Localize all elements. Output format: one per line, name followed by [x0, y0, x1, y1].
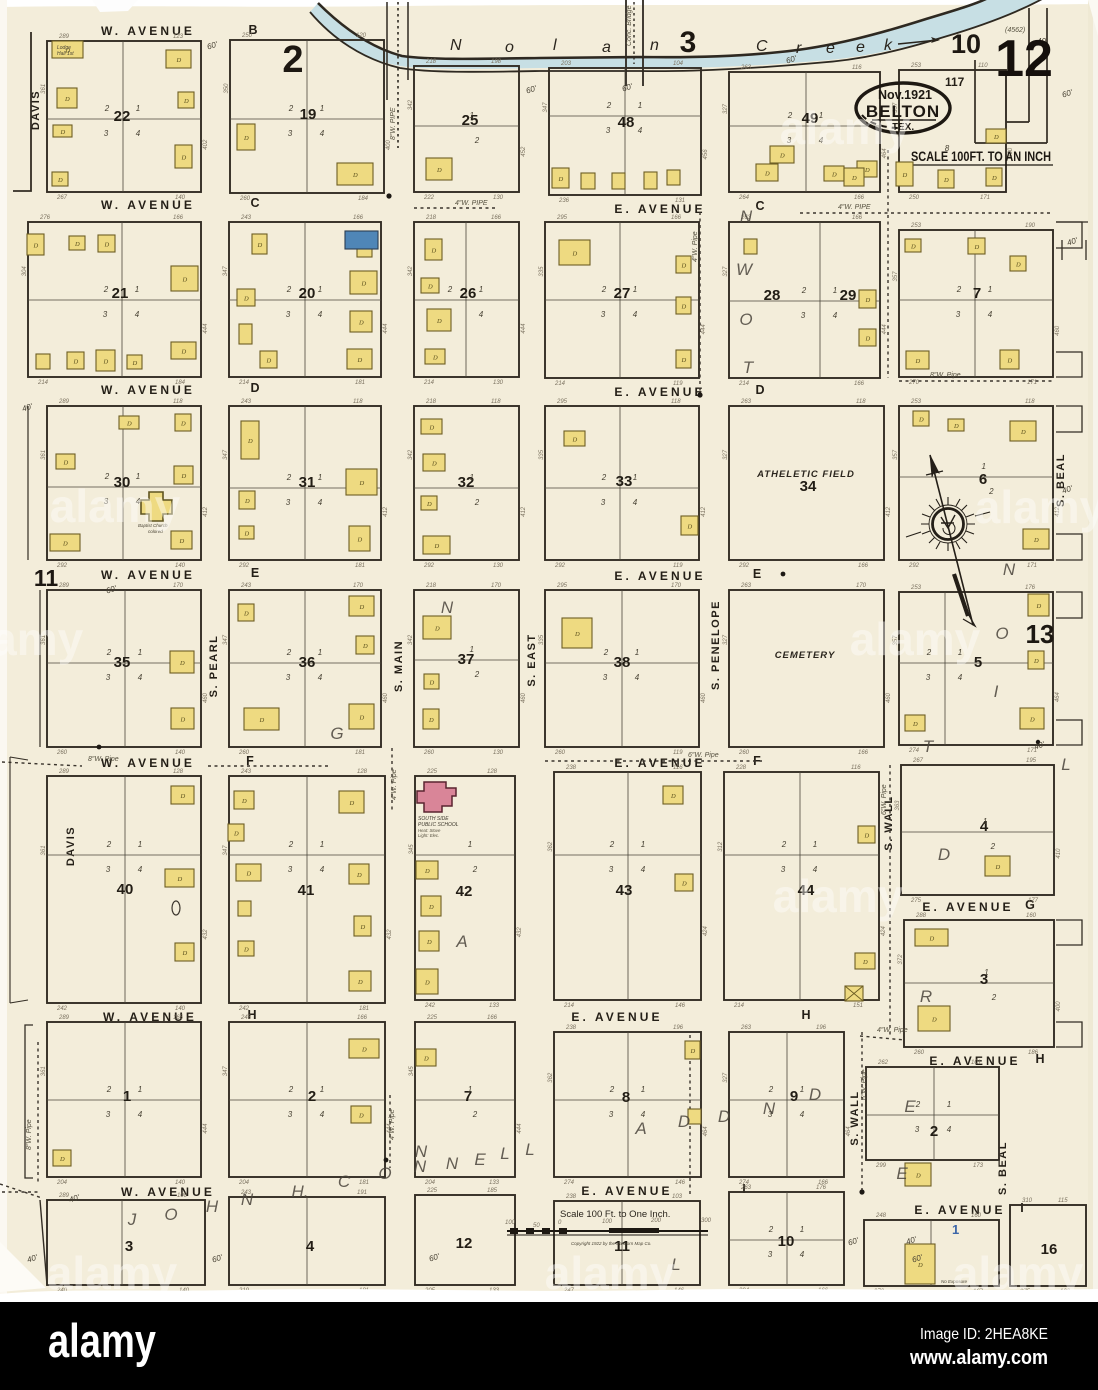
svg-text:190: 190: [1025, 223, 1036, 229]
svg-text:D: D: [243, 611, 249, 618]
svg-text:D: D: [57, 177, 63, 184]
svg-text:444: 444: [203, 1123, 209, 1134]
svg-text:1: 1: [635, 648, 639, 657]
svg-text:176: 176: [1025, 585, 1036, 591]
svg-text:D: D: [993, 134, 999, 141]
svg-text:260: 260: [238, 750, 250, 756]
svg-text:361: 361: [41, 450, 47, 460]
svg-text:D: D: [1015, 262, 1021, 269]
svg-text:464: 464: [703, 1126, 709, 1137]
svg-text:372: 372: [898, 954, 904, 965]
svg-text:D: D: [424, 868, 430, 875]
svg-text:N: N: [446, 1154, 459, 1173]
svg-text:4: 4: [320, 129, 325, 138]
svg-text:166: 166: [357, 1015, 368, 1021]
svg-text:D: D: [431, 248, 437, 255]
svg-text:D: D: [426, 939, 432, 946]
svg-text:292: 292: [238, 563, 250, 569]
svg-text:L: L: [1061, 755, 1070, 774]
svg-text:130: 130: [493, 195, 504, 201]
svg-text:195: 195: [1026, 758, 1037, 764]
svg-text:242: 242: [238, 1006, 250, 1012]
svg-text:41: 41: [298, 882, 315, 899]
svg-text:G: G: [330, 724, 343, 743]
svg-text:4″W. Pipe: 4″W. Pipe: [877, 1027, 908, 1034]
svg-text:171: 171: [980, 195, 990, 201]
svg-text:444: 444: [517, 1123, 523, 1134]
svg-text:19: 19: [300, 106, 317, 123]
svg-text:4″W. Pipe: 4″W. Pipe: [391, 769, 398, 800]
svg-text:22: 22: [114, 108, 131, 125]
svg-text:D: D: [943, 177, 949, 184]
svg-text:170: 170: [856, 583, 867, 589]
svg-text:327: 327: [723, 103, 729, 114]
svg-text:1: 1: [320, 104, 324, 113]
svg-text:3: 3: [609, 1110, 614, 1119]
svg-text:e: e: [826, 40, 835, 57]
svg-text:262: 262: [877, 1060, 889, 1066]
svg-text:D: D: [991, 175, 997, 182]
svg-text:166: 166: [353, 215, 364, 221]
svg-text:1: 1: [138, 1085, 142, 1094]
svg-text:SCALE 100FT. TO AN INCH: SCALE 100FT. TO AN INCH: [911, 149, 1051, 164]
svg-text:J: J: [127, 1210, 137, 1229]
svg-text:133: 133: [489, 1180, 500, 1186]
svg-text:177: 177: [1028, 898, 1039, 904]
svg-text:181: 181: [355, 380, 365, 386]
svg-text:412: 412: [521, 506, 527, 517]
svg-text:35: 35: [114, 654, 131, 671]
svg-text:274: 274: [908, 748, 920, 754]
svg-text:263: 263: [740, 65, 752, 71]
svg-text:263: 263: [740, 1185, 752, 1191]
svg-text:300: 300: [701, 1218, 712, 1224]
svg-text:D: D: [574, 631, 580, 638]
svg-text:204: 204: [56, 1180, 68, 1186]
svg-text:D: D: [361, 1047, 367, 1054]
svg-text:214: 214: [238, 380, 250, 386]
svg-text:D: D: [180, 421, 186, 428]
svg-text:D: D: [243, 947, 249, 954]
svg-text:146: 146: [675, 1003, 686, 1009]
svg-text:1: 1: [318, 285, 322, 294]
svg-text:2: 2: [956, 285, 962, 294]
svg-text:N: N: [415, 1142, 428, 1161]
svg-text:D: D: [434, 626, 440, 633]
svg-text:D: D: [259, 717, 265, 724]
svg-text:253: 253: [910, 399, 922, 405]
svg-text:2: 2: [286, 285, 292, 294]
svg-text:260: 260: [913, 1050, 925, 1056]
svg-text:299: 299: [875, 1163, 887, 1169]
svg-text:146: 146: [675, 1180, 686, 1186]
svg-text:D: D: [126, 421, 132, 428]
svg-text:184: 184: [175, 380, 186, 386]
svg-text:267: 267: [56, 195, 68, 201]
svg-text:1: 1: [947, 1100, 951, 1109]
svg-text:D: D: [831, 172, 837, 179]
svg-text:118: 118: [353, 399, 363, 405]
svg-text:347: 347: [223, 449, 229, 460]
svg-text:D: D: [427, 284, 433, 291]
svg-text:D: D: [246, 871, 252, 878]
svg-text:460: 460: [1055, 325, 1061, 336]
svg-text:250: 250: [241, 33, 253, 39]
svg-text:T: T: [743, 358, 755, 377]
svg-text:D: D: [1020, 429, 1026, 436]
svg-text:D: D: [865, 336, 871, 343]
svg-text:2: 2: [606, 101, 612, 110]
svg-text:Nov.1921: Nov.1921: [878, 88, 932, 102]
svg-text:260: 260: [554, 750, 566, 756]
svg-text:E: E: [753, 567, 761, 581]
svg-text:W: W: [736, 260, 754, 279]
svg-text:274: 274: [563, 1180, 575, 1186]
svg-text:D: D: [357, 357, 363, 364]
svg-text:196: 196: [673, 1025, 684, 1031]
svg-text:243: 243: [240, 769, 252, 775]
svg-text:432: 432: [387, 929, 393, 940]
svg-text:160: 160: [1026, 913, 1037, 919]
svg-text:D: D: [359, 604, 365, 611]
svg-text:166: 166: [854, 195, 865, 201]
svg-text:4: 4: [306, 1238, 315, 1255]
svg-text:D: D: [428, 717, 434, 724]
svg-text:118: 118: [856, 399, 866, 405]
svg-text:2: 2: [106, 1085, 112, 1094]
svg-text:263: 263: [740, 399, 752, 405]
svg-text:327: 327: [723, 634, 729, 645]
svg-text:186: 186: [1028, 1050, 1039, 1056]
svg-text:D: D: [74, 241, 80, 248]
svg-text:D: D: [953, 423, 959, 430]
svg-text:21: 21: [112, 285, 129, 302]
svg-text:130: 130: [493, 750, 504, 756]
svg-text:130: 130: [493, 380, 504, 386]
svg-text:263: 263: [740, 1025, 752, 1031]
svg-text:119: 119: [673, 381, 683, 387]
svg-text:C: C: [338, 1172, 351, 1191]
svg-text:alamy: alamy: [975, 481, 1098, 533]
svg-text:D: D: [60, 129, 66, 136]
svg-text:464: 464: [846, 1126, 852, 1137]
svg-text:D: D: [995, 864, 1001, 871]
svg-text:432: 432: [203, 929, 209, 940]
svg-text:D: D: [1033, 537, 1039, 544]
svg-text:218: 218: [425, 59, 437, 65]
svg-text:E. AVENUE: E. AVENUE: [914, 1203, 1005, 1217]
svg-text:C: C: [756, 38, 768, 55]
svg-text:D: D: [177, 876, 183, 883]
svg-text:D: D: [864, 833, 870, 840]
svg-text:166: 166: [671, 215, 682, 221]
svg-text:238: 238: [565, 1194, 577, 1200]
svg-text:196: 196: [816, 1025, 827, 1031]
svg-text:O: O: [378, 1164, 391, 1183]
svg-text:128: 128: [487, 769, 498, 775]
svg-text:400: 400: [1056, 1001, 1062, 1012]
svg-text:4: 4: [800, 1250, 805, 1259]
svg-text:D: D: [1036, 603, 1042, 610]
svg-text:D: D: [809, 1085, 821, 1104]
svg-text:263: 263: [740, 583, 752, 589]
svg-text:166: 166: [858, 750, 869, 756]
svg-text:50: 50: [533, 1223, 540, 1229]
svg-text:D: D: [104, 242, 110, 249]
svg-text:alamy: alamy: [773, 870, 904, 922]
svg-text:289: 289: [58, 1015, 70, 1021]
svg-text:a: a: [602, 39, 611, 56]
svg-text:n: n: [650, 37, 659, 54]
svg-text:2: 2: [472, 1110, 478, 1119]
svg-text:292: 292: [738, 563, 750, 569]
svg-text:D: D: [33, 243, 39, 250]
svg-text:166: 166: [854, 381, 865, 387]
svg-text:432: 432: [517, 927, 523, 938]
svg-text:289: 289: [58, 399, 70, 405]
svg-text:3: 3: [601, 498, 606, 507]
svg-text:D: D: [360, 924, 366, 931]
svg-text:E. AVENUE: E. AVENUE: [571, 1010, 662, 1024]
svg-text:Copyright 1922 by the Sanborn: Copyright 1922 by the Sanborn Map Co.: [571, 1241, 652, 1246]
svg-text:D: D: [180, 717, 186, 724]
svg-text:D: D: [915, 1173, 921, 1180]
svg-text:2: 2: [601, 285, 607, 294]
svg-text:214: 214: [423, 380, 435, 386]
svg-text:4: 4: [135, 310, 140, 319]
svg-text:3: 3: [288, 1110, 293, 1119]
svg-text:29: 29: [840, 287, 857, 304]
svg-text:1: 1: [813, 840, 817, 849]
svg-text:101: 101: [971, 1060, 981, 1066]
svg-text:D: D: [681, 263, 687, 270]
svg-text:D: D: [428, 904, 434, 911]
svg-text:342: 342: [408, 634, 414, 645]
svg-text:6″W. Pipe: 6″W. Pipe: [881, 784, 888, 815]
svg-text:110: 110: [978, 63, 988, 69]
svg-text:3: 3: [915, 1125, 920, 1134]
svg-text:4: 4: [641, 1110, 646, 1119]
svg-text:D: D: [429, 680, 435, 687]
svg-text:335: 335: [539, 449, 545, 460]
svg-text:345: 345: [409, 844, 415, 855]
svg-text:D: D: [690, 1048, 696, 1055]
svg-text:140: 140: [175, 1006, 186, 1012]
svg-text:3: 3: [956, 310, 961, 319]
svg-text:160: 160: [971, 1213, 982, 1219]
svg-text:1: 1: [981, 462, 985, 471]
svg-text:1: 1: [318, 648, 322, 657]
svg-text:N: N: [241, 1190, 254, 1209]
svg-text:38: 38: [614, 654, 631, 671]
svg-text:181: 181: [355, 563, 365, 569]
svg-text:1: 1: [633, 285, 637, 294]
svg-text:S. PENELOPE: S. PENELOPE: [710, 600, 722, 690]
svg-text:12: 12: [456, 1235, 473, 1252]
svg-text:Conc. Bridge: Conc. Bridge: [626, 5, 633, 46]
svg-text:100: 100: [177, 1193, 188, 1199]
svg-text:3: 3: [926, 673, 931, 682]
svg-text:181: 181: [359, 1006, 369, 1012]
svg-text:444: 444: [203, 323, 209, 334]
svg-text:4: 4: [320, 865, 325, 874]
svg-text:6″W. Pipe: 6″W. Pipe: [861, 1069, 868, 1100]
svg-text:2: 2: [609, 1085, 615, 1094]
svg-text:4: 4: [318, 498, 323, 507]
svg-text:33: 33: [616, 473, 633, 490]
svg-text:327: 327: [723, 1072, 729, 1083]
svg-text:170: 170: [353, 583, 364, 589]
svg-text:327: 327: [723, 266, 729, 277]
svg-text:8″W. PIPE: 8″W. PIPE: [390, 107, 397, 140]
svg-text:D: D: [431, 461, 437, 468]
svg-text:3: 3: [103, 310, 108, 319]
svg-text:166: 166: [487, 1015, 498, 1021]
svg-text:191: 191: [357, 1190, 367, 1196]
svg-text:r: r: [796, 40, 802, 57]
svg-text:D: D: [179, 538, 185, 545]
svg-text:D: D: [357, 979, 363, 986]
svg-text:N: N: [441, 598, 454, 617]
svg-text:2: 2: [288, 840, 294, 849]
svg-text:3: 3: [606, 126, 611, 135]
svg-text:1: 1: [833, 286, 837, 295]
svg-text:D: D: [233, 831, 239, 838]
svg-text:9: 9: [790, 1088, 798, 1105]
svg-text:292: 292: [423, 563, 435, 569]
svg-text:4: 4: [633, 310, 638, 319]
svg-text:D: D: [764, 171, 770, 178]
svg-text:2: 2: [286, 648, 292, 657]
svg-text:460: 460: [886, 692, 892, 703]
svg-text:D: D: [132, 360, 138, 367]
svg-text:alamy: alamy: [47, 1247, 178, 1299]
svg-text:4″W. PIPE: 4″W. PIPE: [455, 200, 488, 207]
svg-text:D: D: [429, 425, 435, 432]
svg-text:1: 1: [320, 840, 324, 849]
svg-text:1: 1: [470, 111, 474, 120]
svg-text:424: 424: [881, 925, 887, 936]
svg-text:E: E: [251, 566, 259, 580]
svg-text:347: 347: [543, 102, 549, 113]
svg-text:43: 43: [616, 882, 633, 899]
svg-text:2: 2: [991, 993, 997, 1002]
svg-text:D: D: [670, 793, 676, 800]
svg-text:119: 119: [673, 750, 683, 756]
svg-text:214: 214: [554, 381, 566, 387]
svg-text:444: 444: [882, 324, 888, 335]
svg-text:4: 4: [479, 310, 484, 319]
svg-text:116: 116: [852, 65, 862, 71]
svg-text:31: 31: [299, 474, 316, 491]
svg-text:4: 4: [318, 310, 323, 319]
svg-text:304: 304: [22, 266, 28, 277]
svg-text:3: 3: [609, 865, 614, 874]
svg-text:ATHELETIC FIELD: ATHELETIC FIELD: [756, 469, 855, 480]
svg-text:151: 151: [853, 1003, 863, 1009]
svg-text:140: 140: [175, 563, 186, 569]
svg-text:4: 4: [318, 673, 323, 682]
svg-text:6″W. Pipe: 6″W. Pipe: [688, 752, 719, 759]
svg-text:2: 2: [930, 1123, 938, 1140]
svg-text:238: 238: [565, 765, 577, 771]
svg-text:D: D: [357, 537, 363, 544]
svg-text:250: 250: [908, 195, 920, 201]
svg-text:N: N: [763, 1099, 776, 1118]
svg-text:225: 225: [426, 1188, 438, 1194]
svg-text:243: 243: [240, 399, 252, 405]
svg-text:7: 7: [973, 285, 981, 302]
svg-text:48: 48: [618, 114, 635, 131]
svg-text:D: D: [349, 800, 355, 807]
svg-text:118: 118: [491, 399, 501, 405]
svg-text:D: D: [681, 357, 687, 364]
svg-text:452: 452: [521, 146, 527, 157]
svg-text:464: 464: [1055, 691, 1061, 702]
svg-text:460: 460: [203, 692, 209, 703]
svg-text:D: D: [681, 304, 687, 311]
svg-text:3: 3: [603, 673, 608, 682]
svg-text:N: N: [450, 37, 462, 54]
svg-text:2: 2: [447, 285, 453, 294]
svg-text:D: D: [865, 297, 871, 304]
svg-text:2: 2: [472, 865, 478, 874]
svg-text:335: 335: [539, 634, 545, 645]
svg-text:26: 26: [460, 285, 477, 302]
svg-text:1: 1: [479, 285, 483, 294]
svg-text:295: 295: [556, 399, 568, 405]
svg-text:10: 10: [778, 1233, 795, 1250]
svg-text:D: D: [851, 175, 857, 182]
svg-text:243: 243: [240, 583, 252, 589]
svg-text:o: o: [505, 39, 514, 56]
svg-text:347: 347: [223, 634, 229, 645]
svg-text:225: 225: [426, 1015, 438, 1021]
svg-text:2: 2: [609, 840, 615, 849]
svg-text:2: 2: [768, 1225, 774, 1234]
svg-text:alamy: alamy: [48, 1314, 156, 1367]
svg-text:2: 2: [474, 670, 480, 679]
svg-text:D: D: [862, 959, 868, 966]
svg-text:D: D: [62, 541, 68, 548]
svg-text:253: 253: [910, 63, 922, 69]
svg-text:D: D: [423, 1056, 429, 1063]
svg-text:D: D: [103, 359, 109, 366]
svg-text:D: D: [362, 643, 368, 650]
svg-text:D: D: [572, 251, 578, 258]
svg-text:4: 4: [638, 126, 643, 135]
svg-text:20: 20: [299, 285, 316, 302]
svg-text:118: 118: [1025, 399, 1035, 405]
svg-text:W. AVENUE: W. AVENUE: [121, 1185, 215, 1199]
svg-text:288: 288: [915, 913, 927, 919]
svg-text:1: 1: [983, 817, 987, 826]
svg-text:2: 2: [990, 842, 996, 851]
svg-text:198: 198: [491, 59, 502, 65]
svg-text:DAVIS: DAVIS: [65, 826, 77, 866]
svg-text:D: D: [257, 242, 263, 249]
svg-text:l: l: [553, 37, 557, 54]
svg-text:2: 2: [282, 39, 303, 81]
svg-text:292: 292: [908, 563, 920, 569]
svg-text:184: 184: [358, 196, 369, 202]
svg-text:295: 295: [556, 215, 568, 221]
svg-text:170: 170: [491, 583, 502, 589]
svg-text:242: 242: [56, 1006, 68, 1012]
svg-text:N: N: [740, 207, 753, 226]
svg-text:3: 3: [106, 1110, 111, 1119]
svg-text:I: I: [994, 682, 999, 701]
